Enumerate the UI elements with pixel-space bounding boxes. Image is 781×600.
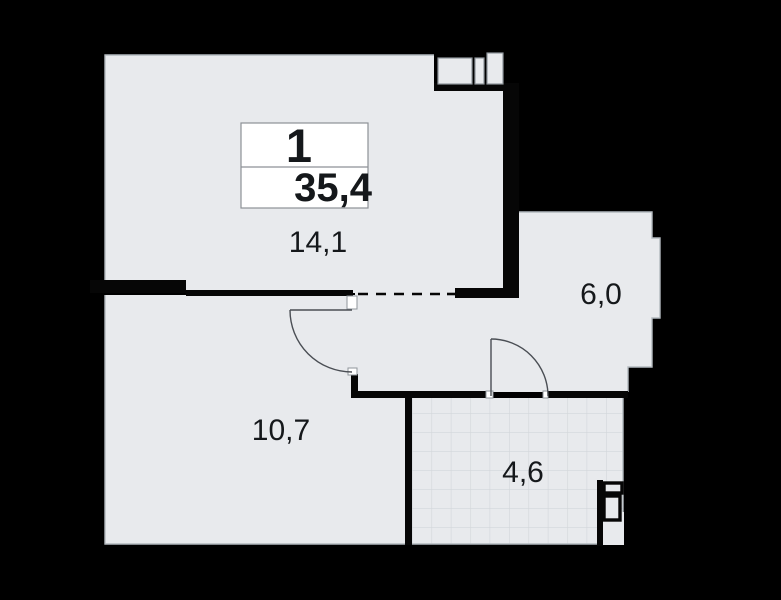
window-unit-icon	[438, 53, 503, 84]
unit-total-area: 35,4	[294, 166, 373, 210]
duct-shaft-icon	[597, 480, 624, 546]
wall-bathroom-top-right	[548, 391, 628, 398]
wall-living-kitchen	[503, 83, 519, 298]
unit-info-box: 1 35,4	[241, 119, 373, 210]
kitchen-area-label: 6,0	[580, 278, 622, 311]
wall-mid-left-thick	[90, 280, 186, 293]
wall-bathroom-top-left	[352, 391, 487, 398]
bedroom-area-label: 10,7	[252, 414, 310, 447]
bathroom-area-label: 4,6	[502, 456, 544, 489]
wall-mid-thin	[186, 290, 353, 296]
living-room-area-label: 14,1	[289, 226, 347, 259]
wall-bedroom-bathroom	[405, 392, 412, 545]
window-pane	[438, 58, 472, 84]
duct-wall-bar	[597, 480, 603, 546]
living-room-floor-bay	[434, 91, 503, 293]
duct-box-bottom	[604, 496, 620, 520]
unit-rooms-count: 1	[286, 119, 312, 172]
wall-mid-right	[455, 288, 503, 298]
window-pane	[475, 58, 484, 84]
floor-plan-canvas: 1 35,4 14,1 6,0 10,7 4,6	[0, 0, 781, 600]
window-pane	[487, 53, 503, 84]
floor-plan: 1 35,4 14,1 6,0 10,7 4,6	[0, 0, 781, 600]
duct-box-top	[604, 483, 622, 493]
door-jamb	[347, 296, 357, 309]
door-jamb	[486, 391, 493, 398]
